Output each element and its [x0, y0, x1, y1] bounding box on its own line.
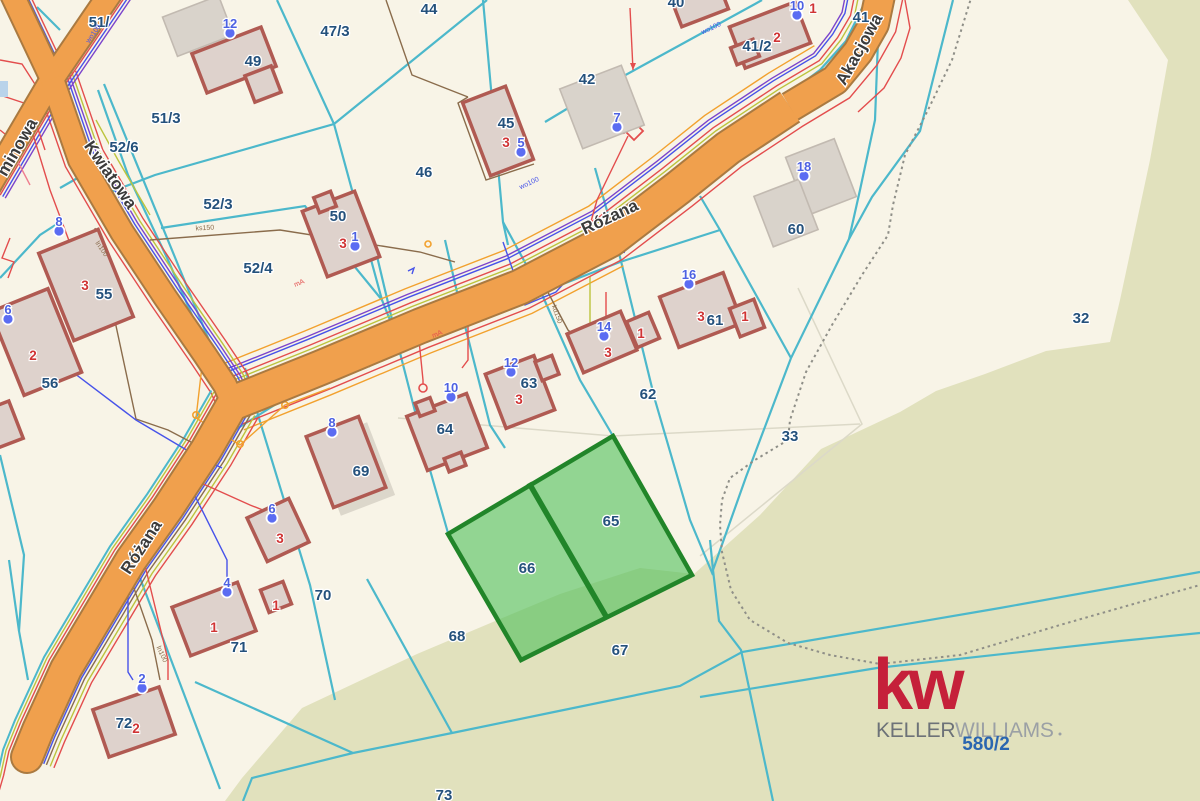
svg-text:63: 63	[521, 375, 538, 392]
svg-text:8: 8	[55, 214, 62, 229]
svg-text:50: 50	[330, 208, 347, 225]
svg-text:1: 1	[351, 229, 358, 244]
svg-text:3: 3	[697, 309, 705, 324]
svg-text:46: 46	[416, 164, 433, 181]
svg-text:580/2: 580/2	[962, 734, 1010, 755]
svg-text:3: 3	[276, 531, 284, 546]
svg-text:52/6: 52/6	[109, 139, 138, 156]
svg-text:16: 16	[682, 267, 696, 282]
svg-text:51/3: 51/3	[151, 110, 180, 127]
svg-text:1: 1	[809, 1, 817, 16]
svg-text:49: 49	[245, 53, 262, 70]
svg-text:1: 1	[272, 598, 280, 613]
svg-text:73: 73	[436, 787, 453, 801]
svg-text:10: 10	[790, 0, 804, 13]
svg-text:1: 1	[210, 620, 218, 635]
svg-text:18: 18	[797, 159, 811, 174]
svg-text:52/3: 52/3	[203, 196, 232, 213]
svg-text:69: 69	[353, 463, 370, 480]
svg-text:68: 68	[449, 628, 466, 645]
svg-text:12: 12	[504, 355, 518, 370]
svg-text:2: 2	[29, 348, 37, 363]
svg-text:10: 10	[444, 380, 458, 395]
svg-text:1: 1	[741, 309, 749, 324]
svg-text:2: 2	[138, 671, 145, 686]
svg-text:47/3: 47/3	[320, 23, 349, 40]
svg-text:41/2: 41/2	[742, 38, 771, 55]
svg-text:52/4: 52/4	[243, 260, 273, 277]
svg-text:6: 6	[4, 302, 11, 317]
svg-text:6: 6	[268, 501, 275, 516]
svg-text:62: 62	[640, 386, 657, 403]
svg-text:67: 67	[612, 642, 629, 659]
svg-text:7: 7	[613, 110, 620, 125]
svg-text:40: 40	[668, 0, 685, 11]
svg-text:4: 4	[223, 575, 231, 590]
svg-text:kw: kw	[873, 645, 966, 725]
svg-text:8: 8	[328, 415, 335, 430]
svg-text:65: 65	[603, 513, 620, 530]
svg-text:61: 61	[707, 312, 724, 329]
svg-text:2: 2	[773, 30, 781, 45]
svg-text:2: 2	[132, 721, 140, 736]
svg-text:64: 64	[437, 421, 454, 438]
svg-text:55: 55	[96, 286, 113, 303]
svg-text:71: 71	[231, 639, 248, 656]
svg-text:56: 56	[42, 375, 59, 392]
svg-text:70: 70	[315, 587, 332, 604]
svg-text:32: 32	[1073, 310, 1090, 327]
svg-text:44: 44	[421, 1, 438, 18]
svg-text:42: 42	[579, 71, 596, 88]
svg-text:12: 12	[223, 16, 237, 31]
svg-text:60: 60	[788, 221, 805, 238]
svg-text:33: 33	[782, 428, 799, 445]
svg-text:3: 3	[339, 236, 347, 251]
svg-text:3: 3	[502, 135, 510, 150]
svg-text:45: 45	[498, 115, 515, 132]
svg-text:66: 66	[519, 560, 536, 577]
svg-text:3: 3	[515, 392, 523, 407]
svg-text:14: 14	[597, 319, 612, 334]
svg-text:5: 5	[517, 135, 524, 150]
svg-text:3: 3	[604, 345, 612, 360]
svg-text:3: 3	[81, 278, 89, 293]
svg-text:72: 72	[116, 715, 133, 732]
svg-text:1: 1	[637, 326, 645, 341]
svg-text:ks150: ks150	[195, 225, 214, 233]
